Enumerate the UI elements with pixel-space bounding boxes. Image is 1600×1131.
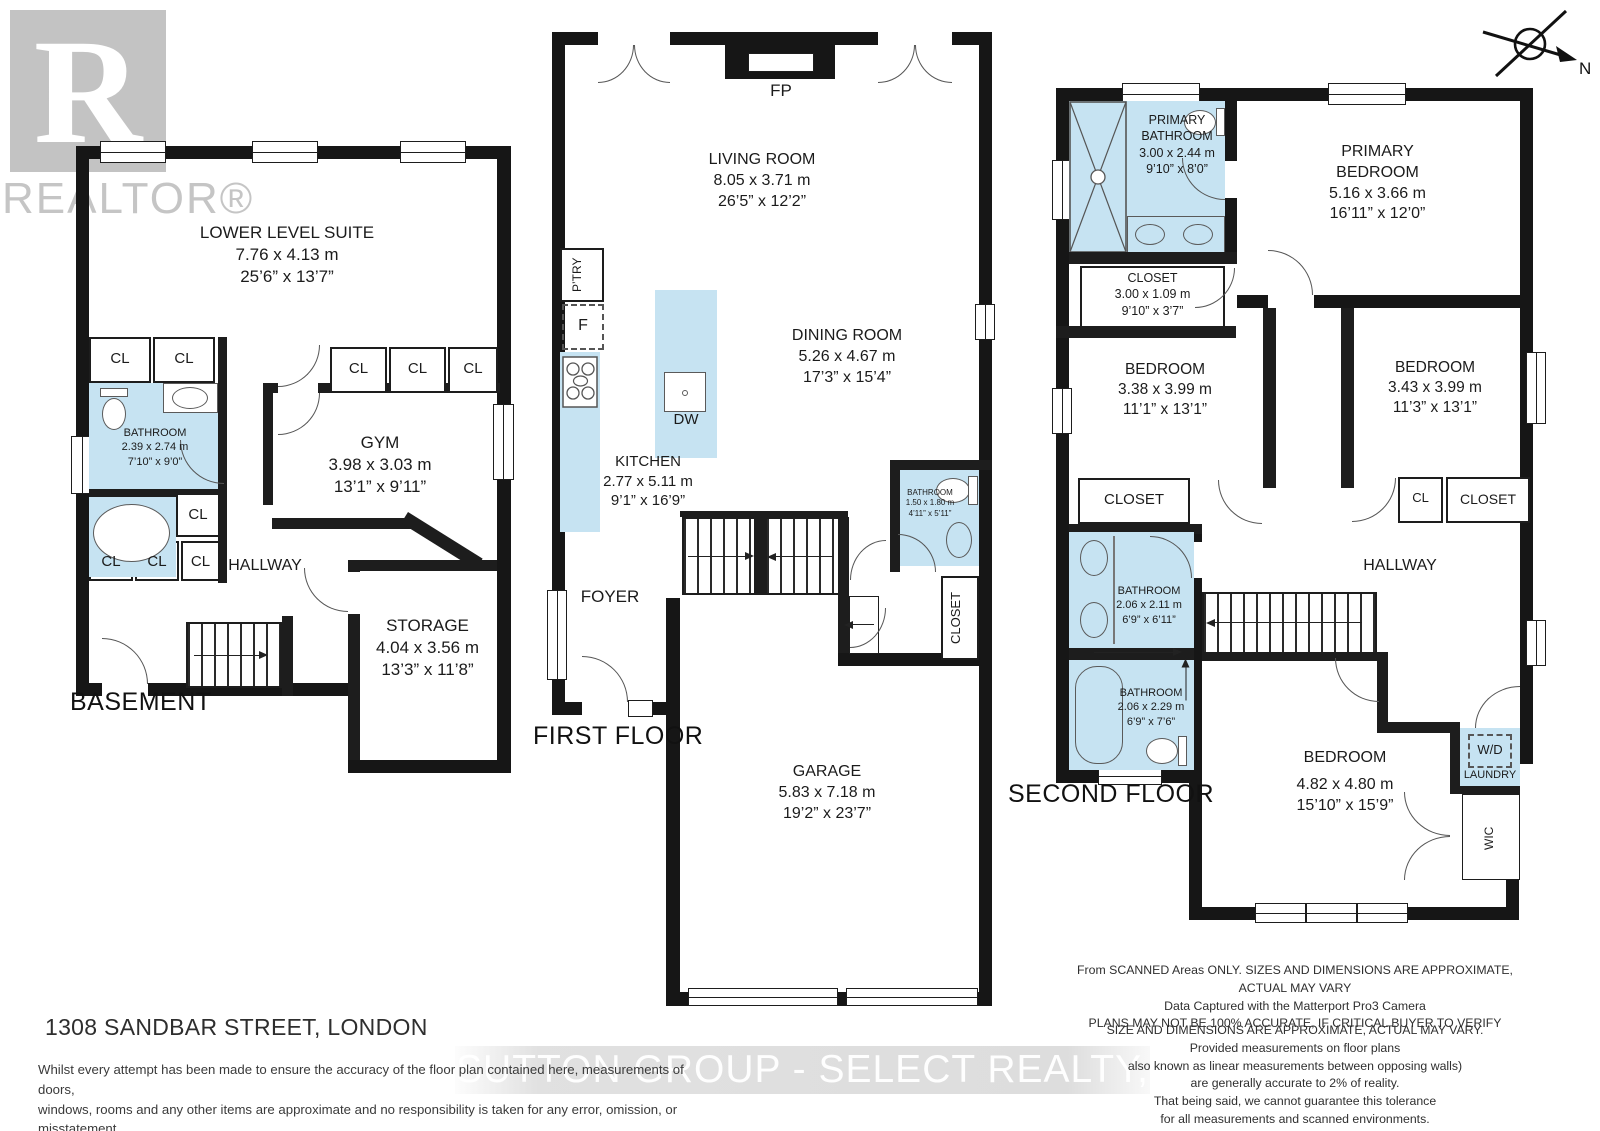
wall <box>348 760 511 773</box>
window <box>1526 352 1546 424</box>
svg-text:N: N <box>1579 59 1591 78</box>
closet-label: CL <box>389 359 446 379</box>
french-door-arc <box>915 45 952 83</box>
room-label-bathroom: BATHROOM 2.39 x 2.74 m 7’10” x 9’0” <box>96 426 214 469</box>
wall <box>76 146 89 696</box>
sink-icon <box>1183 224 1213 245</box>
passage-arrow <box>1094 652 1174 653</box>
wall <box>1225 198 1237 256</box>
french-door-arc <box>878 45 915 83</box>
door-arc <box>850 608 886 648</box>
french-door-arc <box>634 45 670 83</box>
disclaimer-left: Whilst every attempt has been made to en… <box>38 1060 698 1131</box>
room-label-bed-right: BEDROOM 3.43 x 3.99 m 11’3” x 13’1” <box>1355 358 1515 418</box>
door-arc <box>582 656 628 702</box>
door-opening <box>582 702 628 715</box>
window <box>400 141 466 163</box>
door-arc <box>1404 836 1450 880</box>
window <box>1526 620 1546 666</box>
garage-door <box>846 988 978 1006</box>
sink-icon <box>172 387 208 409</box>
stairs-arrow <box>1214 622 1362 623</box>
toilet-icon <box>1178 736 1187 766</box>
room-label-bed-bottom: BEDROOM 4.82 x 4.80 m 15’10” x 15’9” <box>1265 748 1425 816</box>
wall <box>348 560 497 571</box>
closet-label: CLOSET <box>1078 490 1190 510</box>
room-label-gym: GYM 3.98 x 3.03 m 13’1” x 9’11” <box>290 432 470 498</box>
toilet-icon <box>1146 738 1178 764</box>
closet-label: CL <box>176 505 220 525</box>
room-label-suite: LOWER LEVEL SUITE 7.76 x 4.13 m 25’6” x … <box>162 222 412 288</box>
pantry-label: P’TRY <box>570 252 594 298</box>
wall <box>1056 326 1236 338</box>
address: 1308 SANDBAR STREET, LONDON <box>45 1014 428 1041</box>
closet-label: CL <box>448 359 498 379</box>
door-arc <box>1352 478 1396 522</box>
room-label-primary-bath: PRIMARY BATHROOM 3.00 x 2.44 m 9’10” x 8… <box>1126 112 1228 177</box>
washer-dryer-label: W/D <box>1466 742 1514 759</box>
floor-title-second: SECOND FLOOR <box>1008 780 1214 809</box>
stairs-arrow <box>775 556 833 557</box>
laundry-label: LAUNDRY <box>1454 768 1526 782</box>
window <box>1328 83 1406 105</box>
wall <box>890 460 992 470</box>
room-label-living: LIVING ROOM 8.05 x 3.71 m 26’5” x 12’2” <box>682 150 842 212</box>
door-arc <box>1218 480 1262 524</box>
closet-label: CLOSET <box>1446 490 1530 508</box>
toilet-icon <box>100 388 128 397</box>
sink-icon <box>1080 602 1108 638</box>
room-label-bed-left: BEDROOM 3.38 x 3.99 m 11’1” x 13’1” <box>1085 360 1245 420</box>
wall <box>979 340 992 1006</box>
window <box>252 141 318 163</box>
room-label-storage: STORAGE 4.04 x 3.56 m 13’3” x 11’8” <box>360 615 495 681</box>
room-label-primary-bed: PRIMARY BEDROOM 5.16 x 3.66 m 16’11” x 1… <box>1290 142 1465 225</box>
sink-icon <box>1080 540 1108 576</box>
room-label-garage: GARAGE 5.83 x 7.18 m 19’2” x 23’7” <box>748 762 906 824</box>
window <box>493 404 514 480</box>
window <box>1357 903 1408 923</box>
fridge-label: F <box>562 316 604 337</box>
sink-icon <box>946 522 972 558</box>
door-arc <box>1268 250 1313 295</box>
kitchen-sink-drain <box>682 390 688 396</box>
door-arc <box>1475 686 1520 728</box>
wall <box>756 517 765 595</box>
closet-label: CL <box>330 359 387 379</box>
room-label-hallway: HALLWAY <box>210 556 320 577</box>
compass-icon: N <box>1478 6 1596 94</box>
closet-label: CL <box>89 552 133 572</box>
wall <box>666 598 680 1006</box>
stairs-arrow <box>194 655 260 656</box>
wall <box>1450 786 1520 794</box>
wall <box>1341 308 1354 488</box>
window <box>1255 903 1306 923</box>
window <box>547 590 567 680</box>
shower-icon <box>1069 101 1127 253</box>
wic-label: WIC <box>1482 810 1502 866</box>
window <box>1052 388 1072 434</box>
wall <box>670 32 725 45</box>
stairs-arrow <box>688 556 746 557</box>
room-label-kitchen: KITCHEN 2.77 x 5.11 m 9’1” x 16’9” <box>588 452 708 511</box>
french-door-arc <box>598 45 634 83</box>
fireplace-label: FP <box>742 80 820 102</box>
room-label-hallway-second: HALLWAY <box>1342 556 1458 577</box>
stove-icon <box>562 356 598 408</box>
room-label-primary-closet: CLOSET 3.00 x 1.09 m 9’10” x 3’7” <box>1085 270 1220 319</box>
door-opening <box>1268 295 1314 308</box>
fireplace-inner <box>748 53 814 72</box>
door-arc <box>278 345 320 387</box>
floor-title-first: FIRST FLOOR <box>533 722 703 751</box>
closet-label: CL <box>89 349 151 369</box>
room-label-foyer: FOYER <box>572 586 648 608</box>
wall <box>835 32 878 45</box>
door-arc <box>102 638 148 684</box>
garage-door <box>688 988 838 1006</box>
closet-label: CL <box>153 349 215 369</box>
floor-title-basement: BASEMENT <box>70 688 212 717</box>
room-label-bathroom-first: BATHROOM 1.50 x 1.80 m 4’11” x 5’11” <box>898 488 962 519</box>
stairs <box>1202 592 1377 654</box>
wall <box>1377 722 1460 733</box>
window <box>975 304 995 340</box>
door-leaf <box>628 700 653 717</box>
wall <box>979 32 992 304</box>
toilet-icon <box>968 476 978 505</box>
door-arc <box>850 540 886 580</box>
wall <box>263 383 273 505</box>
window <box>100 141 166 163</box>
room-label-bath-bottom: BATHROOM 2.06 x 2.29 m 6’9” x 7’6” <box>1110 686 1192 729</box>
closet-label: CL <box>181 552 220 572</box>
closet-label: CL <box>135 552 179 572</box>
floor-plan-page: R REALTOR® N N <box>0 0 1600 1131</box>
room-label-bath-top: BATHROOM 2.06 x 2.11 m 6’9” x 6’11” <box>1108 584 1190 627</box>
wall <box>838 517 849 653</box>
closet-label: CL <box>1398 490 1443 507</box>
wall <box>282 616 293 696</box>
window <box>1306 903 1357 923</box>
wall <box>272 518 412 529</box>
door-opening <box>348 572 360 614</box>
realtor-wordmark: REALTOR® <box>2 174 212 224</box>
wall <box>1263 308 1276 488</box>
wall <box>1069 252 1237 264</box>
closet-label: CLOSET <box>948 582 972 654</box>
room-label-dining: DINING ROOM 5.26 x 4.67 m 17’3” x 15’4” <box>768 326 926 388</box>
dishwasher-label: DW <box>656 410 716 430</box>
disclaimer-right-2: SIZE AND DIMENSIONS ARE APPROXIMATE, ACT… <box>1075 1022 1515 1131</box>
door-arc <box>1335 658 1379 702</box>
sink-icon <box>1135 224 1165 245</box>
door-arc <box>278 393 320 435</box>
